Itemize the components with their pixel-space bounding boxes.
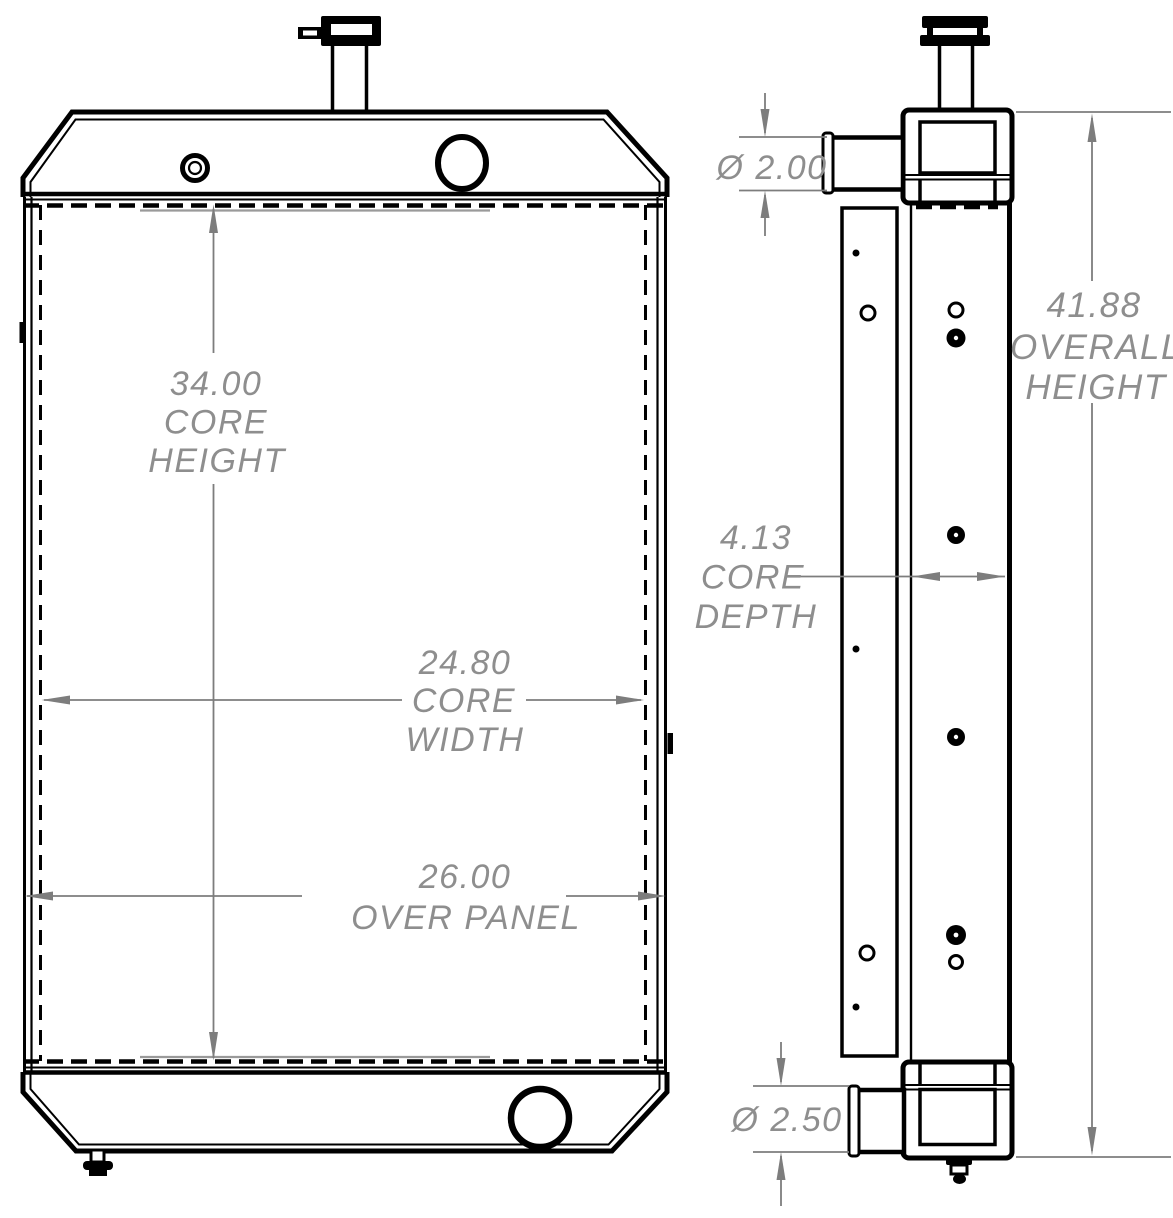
column-hole (950, 956, 963, 969)
top-tank-front (23, 112, 667, 197)
dim-inlet-diameter: Ø 2.00 (715, 93, 827, 236)
arrowhead-down (1088, 1127, 1097, 1156)
pipe-body (832, 138, 903, 190)
outlet-pipe (849, 1086, 904, 1156)
column-hole (949, 303, 963, 317)
dim-core-height: 34.00 CORE HEIGHT (148, 205, 286, 1061)
bracket-hole (853, 646, 860, 653)
cap-side (977, 16, 983, 46)
arrowhead-down (777, 1058, 786, 1086)
column-hole-center (954, 735, 958, 739)
side-view: Ø 2.00 41.88 OVERALL HEIGHT 4.13 CORE DE… (695, 16, 1173, 1206)
arrowhead-up (209, 205, 218, 234)
grommet-hole-inner (189, 162, 201, 174)
core-side-panels (20, 197, 674, 1071)
bracket-plate (842, 208, 897, 1056)
cap-side (927, 16, 933, 46)
dim-label: OVER PANEL (351, 899, 581, 937)
right-weld-tab (668, 733, 674, 754)
bracket-hole (853, 1004, 860, 1011)
pipe-bead (849, 1086, 859, 1156)
mounting-bracket (842, 208, 897, 1056)
dim-value: Ø 2.50 (730, 1101, 842, 1139)
column-hole-center (954, 533, 958, 537)
drain-stem (951, 1165, 967, 1174)
dim-value: 26.00 (418, 858, 512, 896)
dim-label: OVERALL (1010, 328, 1173, 367)
dim-label: WIDTH (406, 721, 525, 759)
drawing-canvas: 34.00 CORE HEIGHT 24.80 CORE WIDTH 26.00… (0, 0, 1173, 1218)
arrowhead-right (977, 572, 1005, 581)
dim-label: CORE (701, 559, 805, 597)
dim-label: HEIGHT (148, 442, 286, 480)
pipe-body (858, 1090, 904, 1152)
outlet-opening (511, 1089, 569, 1147)
left-weld-tab (20, 322, 26, 343)
dim-value: 41.88 (1046, 286, 1141, 325)
drain-flange (83, 1161, 113, 1170)
core-column (911, 203, 1010, 1062)
bottom-header-band (23, 1057, 667, 1073)
filler-neck-front (298, 16, 381, 112)
drain-tip (89, 1170, 107, 1176)
tank-outline (23, 112, 667, 197)
dim-core-width: 24.80 CORE WIDTH (42, 644, 645, 759)
dim-value: Ø 2.00 (715, 149, 827, 187)
cap-slot (331, 24, 372, 35)
arrowhead-right (638, 892, 666, 901)
dim-outlet-diameter: Ø 2.50 (730, 1042, 849, 1206)
dim-over-panel: 26.00 OVER PANEL (25, 858, 667, 937)
bottom-tank-front (23, 1072, 667, 1176)
dim-overall-height: 41.88 OVERALL HEIGHT (1010, 112, 1173, 1157)
radiator-drawing: 34.00 CORE HEIGHT 24.80 CORE WIDTH 26.00… (0, 0, 1173, 1218)
dim-value: 34.00 (170, 365, 263, 403)
arrowhead-right (616, 696, 644, 705)
arrowhead-left (912, 572, 940, 581)
dim-value: 24.80 (418, 644, 512, 682)
tank-inner-line (31, 120, 660, 198)
dim-label: HEIGHT (1025, 368, 1167, 407)
inlet-pipe (823, 133, 903, 193)
arrowhead-up (777, 1152, 786, 1180)
bottom-tank-side (903, 1062, 1012, 1184)
arrowhead-left (25, 892, 54, 901)
grommet-hole (183, 156, 208, 181)
filler-neck-side (920, 16, 990, 110)
drain-tip (953, 1174, 966, 1184)
top-header-band (23, 194, 667, 211)
drain-stem (91, 1150, 104, 1162)
arrowhead-up (1088, 114, 1097, 143)
column-hole-center (954, 336, 958, 340)
cap-nub-slot (303, 31, 317, 36)
front-view: 34.00 CORE HEIGHT 24.80 CORE WIDTH 26.00… (20, 16, 674, 1176)
arrowhead-down (761, 109, 770, 137)
filler-opening (438, 137, 486, 189)
top-tank-side (903, 110, 1012, 207)
column-hole-center (954, 933, 959, 938)
bracket-hole (853, 250, 860, 257)
arrowhead-up (761, 191, 770, 219)
dim-label: DEPTH (695, 598, 818, 636)
dim-label: CORE (412, 682, 516, 720)
arrowhead-left (42, 696, 71, 705)
dim-value: 4.13 (720, 519, 792, 557)
dim-label: CORE (164, 404, 268, 442)
